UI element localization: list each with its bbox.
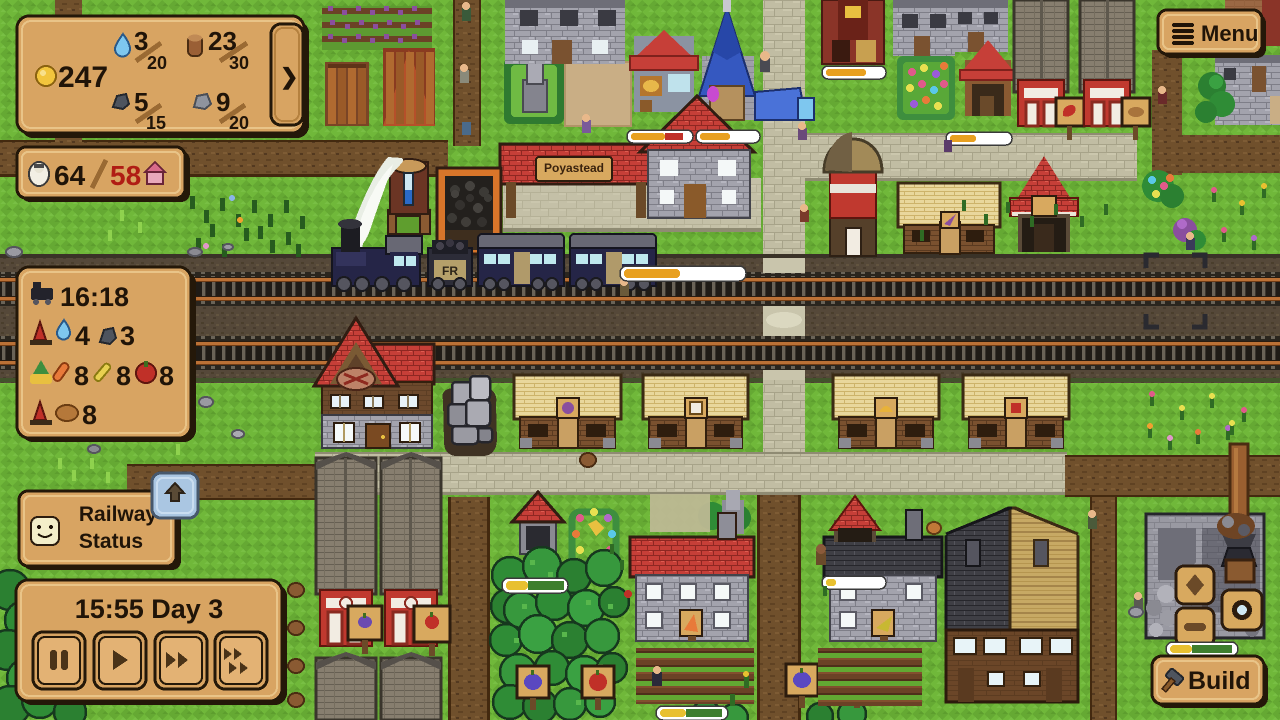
svg-text:Status: Status — [79, 530, 143, 553]
svg-text:20: 20 — [229, 113, 249, 133]
svg-text:3: 3 — [120, 321, 135, 351]
svg-text:30: 30 — [229, 53, 249, 73]
svg-text:Build: Build — [1188, 667, 1251, 695]
svg-text:15:55 Day 3: 15:55 Day 3 — [75, 594, 224, 624]
svg-text:8: 8 — [159, 361, 174, 391]
svg-text:8: 8 — [116, 361, 131, 391]
svg-text:58: 58 — [110, 160, 141, 191]
svg-text:❯: ❯ — [280, 64, 298, 90]
svg-text:Menu: Menu — [1201, 21, 1258, 46]
svg-text:15: 15 — [146, 113, 166, 133]
svg-text:Railway: Railway — [79, 503, 158, 526]
svg-text:8: 8 — [82, 400, 97, 430]
svg-text:16:18: 16:18 — [60, 282, 129, 312]
svg-text:64: 64 — [54, 160, 86, 191]
svg-text:4: 4 — [75, 321, 90, 351]
svg-text:Poyastead: Poyastead — [544, 161, 604, 175]
svg-text:247: 247 — [58, 61, 108, 94]
svg-text:FR: FR — [442, 264, 458, 278]
svg-text:8: 8 — [74, 361, 89, 391]
svg-text:20: 20 — [147, 53, 167, 73]
